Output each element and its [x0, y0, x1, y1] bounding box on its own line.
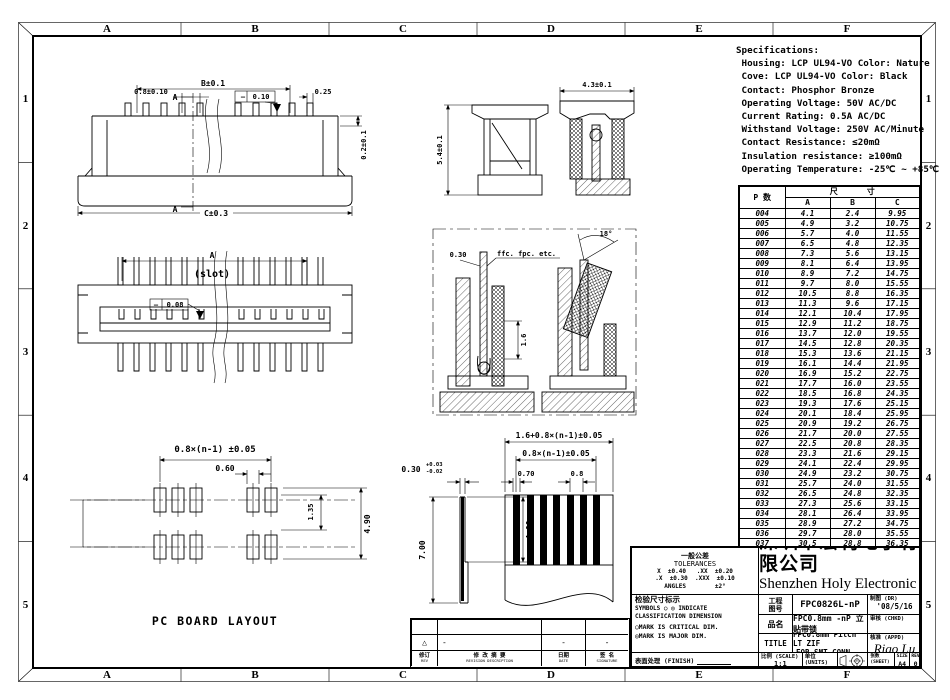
parts-table-cell: 025: [739, 419, 785, 429]
grid-row-label: 2: [921, 162, 936, 288]
ffc-view-drawing: 1.6+0.8×(n-1)±0.05 0.8×(n-1)±0.05 0.70 0…: [483, 428, 648, 613]
parts-table-cell: 22.75: [875, 369, 920, 379]
parts-table-row: 0076.54.812.35: [739, 239, 920, 249]
parts-table-col-header: B: [830, 198, 875, 209]
revision-mark-date: -: [541, 634, 585, 650]
dr-cell: 制图 (DR) '08/5/16: [867, 594, 921, 614]
parts-table-cell: 026: [739, 429, 785, 439]
label: SIGNATURE: [588, 659, 626, 664]
parts-table: P 数尺 寸ABC0044.12.49.950054.93.210.750065…: [738, 185, 921, 560]
grid-col-label: A: [33, 21, 181, 36]
front-view-geometry: [78, 99, 352, 206]
parts-table-cell: 027: [739, 439, 785, 449]
parts-table-cell: 25.6: [830, 499, 875, 509]
parts-table-row: 02016.915.222.75: [739, 369, 920, 379]
parts-table-cell: 11.55: [875, 229, 920, 239]
parts-table-cell: 29.15: [875, 449, 920, 459]
units-label: 单位 (UNITS): [803, 653, 837, 666]
pcb-layout-caption: PC BOARD LAYOUT: [152, 614, 278, 628]
parts-table-cell: 25.95: [875, 409, 920, 419]
parts-table-cell: 032: [739, 489, 785, 499]
product-label: 品名: [758, 614, 792, 633]
parts-table-cell: 22.4: [830, 459, 875, 469]
parts-table-cell: 022: [739, 389, 785, 399]
parts-table-row: 03629.728.035.55: [739, 529, 920, 539]
revision-header-sign: 签 名 SIGNATURE: [585, 650, 628, 666]
parts-table-cell: 006: [739, 229, 785, 239]
parts-table-cell: 21.15: [875, 349, 920, 359]
parts-table-cell: 19.55: [875, 329, 920, 339]
parts-table-cell: 6.5: [785, 239, 830, 249]
parts-table-row: 03528.927.234.75: [739, 519, 920, 529]
dim-overall-label: 1.6+0.8×(n-1)±0.05: [516, 431, 603, 440]
third-angle-projection-icon: [838, 654, 866, 668]
parts-table-cell: 33.95: [875, 509, 920, 519]
title-value: FPC0.8mm Pitch LT ZIF FOR SMT CONN: [792, 633, 867, 652]
grid-col-label: A: [33, 667, 181, 682]
title-label: TITLE: [758, 633, 792, 652]
parts-table-row: 02520.919.226.75: [739, 419, 920, 429]
inspection-critical: ○MARK IS CRITICAL DIM.: [632, 624, 718, 633]
parts-table-cell: 14.5: [785, 339, 830, 349]
parts-table-cell: 007: [739, 239, 785, 249]
dim-b-label: B±0.1: [201, 79, 225, 88]
parts-table-cell: 016: [739, 329, 785, 339]
parts-table-cell: 16.8: [830, 389, 875, 399]
parts-table-cell: 7.3: [785, 249, 830, 259]
parts-table-cell: 12.9: [785, 319, 830, 329]
parts-table-cell: 10.4: [830, 309, 875, 319]
parts-table-cell: 34.75: [875, 519, 920, 529]
finish-cell: 表面处理 (FINISH): [632, 652, 758, 668]
dim-depth-label: 1.6: [520, 334, 528, 347]
parts-table-cell: 13.95: [875, 259, 920, 269]
tolerance-line: .X ±0.30 .XXX ±0.10: [655, 575, 734, 583]
parts-table-cell: 005: [739, 219, 785, 229]
parts-table-cell: 16.9: [785, 369, 830, 379]
parts-table-cell: 11.2: [830, 319, 875, 329]
parts-table-cell: 028: [739, 449, 785, 459]
spec-line: Current Rating: 0.5A AC/DC: [736, 110, 936, 123]
dr-label: 制图 (DR): [868, 595, 898, 602]
sheet-value: 1 OF 1: [868, 666, 894, 668]
grid-row-label: 3: [921, 289, 936, 415]
parts-table-cell: 27.2: [830, 519, 875, 529]
parts-table-cell: 27.3: [785, 499, 830, 509]
rev-cell: REV 0: [909, 653, 921, 668]
parts-table-cell: 4.0: [830, 229, 875, 239]
dim-span-label: 0.8×(n-1) ±0.05: [174, 445, 255, 455]
parts-table-cell: 21.95: [875, 359, 920, 369]
parts-table-dim-header: 尺 寸: [785, 186, 920, 198]
label: 修订: [412, 653, 437, 659]
parts-table-cell: 3.2: [830, 219, 875, 229]
parts-table-cell: 9.95: [875, 209, 920, 219]
parts-table-cell: 10.75: [875, 219, 920, 229]
ffc-dim-lines: [501, 438, 613, 492]
parts-table-row: 0098.16.413.95: [739, 259, 920, 269]
tolerance-title-en: TOLERANCES: [674, 560, 716, 568]
parts-table-cell: 20.0: [830, 429, 875, 439]
parts-table-row: 01412.110.417.95: [739, 309, 920, 319]
parts-table-cell: 18.75: [875, 319, 920, 329]
detail-open-section: [542, 260, 634, 412]
datum-triangle: [196, 311, 204, 319]
top-view-drawing: A (slot) — 0.08: [60, 243, 390, 403]
parts-table-cell: 12.0: [830, 329, 875, 339]
dim-thickness-label: 0.30: [450, 251, 467, 259]
rev-value: 0: [910, 660, 921, 668]
parts-table-cell: 8.1: [785, 259, 830, 269]
parts-table-cell: 20.9: [785, 419, 830, 429]
inspection-line: SYMBOLS ○ ◎ INDICATE: [632, 605, 707, 613]
front-view-pins: [125, 103, 313, 116]
pcb-layout-drawing: 0.8×(n-1) ±0.05 0.60 1.35 4.90 PC BOARD …: [55, 438, 375, 633]
parts-table-row: 01916.114.421.95: [739, 359, 920, 369]
parts-table-cell: 26.5: [785, 489, 830, 499]
drawing-sheet: AABBCCDDEEFF1122334455 Specifications: H…: [0, 0, 950, 700]
parts-table-row: 02823.321.629.15: [739, 449, 920, 459]
dim-a-label: A: [210, 251, 215, 260]
section-label-top: A: [173, 93, 178, 102]
revision-cell: [411, 619, 437, 634]
parts-table-cell: 24.8: [830, 489, 875, 499]
parts-table-cell: 013: [739, 299, 785, 309]
grid-row-label: 5: [921, 542, 936, 668]
parts-table-cell: 23.3: [785, 449, 830, 459]
front-view-dim-lines: [78, 85, 362, 216]
parts-table-cell: 15.3: [785, 349, 830, 359]
parts-table-cell: 13.6: [830, 349, 875, 359]
parts-table-cell: 020: [739, 369, 785, 379]
label: 修 改 摘 要: [438, 653, 541, 659]
parts-table-cell: 25.7: [785, 479, 830, 489]
parts-table-cell: 024: [739, 409, 785, 419]
label: 日期: [542, 653, 585, 659]
parts-table-row: 02117.716.023.55: [739, 379, 920, 389]
partno-value: FPC0826L-nP: [792, 594, 867, 614]
inspection-major: ◎MARK IS MAJOR DIM.: [632, 633, 707, 642]
spec-line: Housing: LCP UL94-VO Color: Nature: [736, 57, 936, 70]
parts-table-cell: 036: [739, 529, 785, 539]
top-view-contacts: [119, 309, 324, 319]
revision-header-desc: 修 改 摘 要 REVISION DESCRIPTION: [437, 650, 541, 666]
parts-table-cell: 15.55: [875, 279, 920, 289]
scale-value: 1:1: [759, 660, 802, 668]
label: DATE: [544, 659, 583, 664]
parts-table-cell: 015: [739, 319, 785, 329]
partno-label-cell: 工程 图号: [758, 594, 792, 614]
label: REV: [413, 659, 436, 664]
detail-box-drawing: 0.30 ffc. fpc. etc. 1.6 18°: [430, 226, 642, 428]
grid-col-label: C: [329, 667, 477, 682]
grid-row-label: 4: [921, 415, 936, 541]
parts-table-cell: 17.15: [875, 299, 920, 309]
units-cell: 单位 (UNITS) mm: [802, 653, 837, 668]
appd-cell: 核准 (APPD) Rigo Lu: [867, 633, 921, 652]
dim-thickness-label: 0.30: [401, 465, 420, 474]
label: REVISION DESCRIPTION: [443, 659, 536, 664]
grid-col-label: D: [477, 667, 625, 682]
product-value: FPC0.8mm -nP 立贴带锁: [792, 614, 867, 633]
parts-table-cell: 24.35: [875, 389, 920, 399]
parts-table-row: 0119.78.015.55: [739, 279, 920, 289]
parts-table-cell: 20.8: [830, 439, 875, 449]
parts-table-cell: 4.9: [785, 219, 830, 229]
parts-table-row: 02319.317.625.15: [739, 399, 920, 409]
revision-cell: [585, 619, 628, 634]
dim-angle-label: 18°: [600, 230, 613, 238]
parts-table-cell: 031: [739, 479, 785, 489]
parts-table-row: 02621.720.027.55: [739, 429, 920, 439]
parts-table-cell: 23.55: [875, 379, 920, 389]
fcf-value: 0.10: [253, 93, 270, 101]
fcf-value: 0.08: [167, 301, 184, 309]
parts-table-row: 03226.524.832.35: [739, 489, 920, 499]
spec-line: Contact Resistance: ≤20mΩ: [736, 136, 936, 149]
parts-table-cell: 4.1: [785, 209, 830, 219]
parts-table-cell: 21.7: [785, 429, 830, 439]
revision-cell: [541, 619, 585, 634]
parts-table-cell: 16.35: [875, 289, 920, 299]
parts-table-cell: 004: [739, 209, 785, 219]
parts-table-cell: 033: [739, 499, 785, 509]
grid-col-label: B: [181, 667, 329, 682]
parts-table-cell: 29.95: [875, 459, 920, 469]
parts-table-cell: 021: [739, 379, 785, 389]
parts-table-row: 0044.12.49.95: [739, 209, 920, 219]
company-name-cn: 深圳市宏利电子有限公司: [759, 548, 921, 576]
grid-col-label: E: [625, 21, 773, 36]
parts-table-cell: 6.4: [830, 259, 875, 269]
size-cell: SIZE A4: [894, 653, 909, 668]
spec-lines: Housing: LCP UL94-VO Color: Nature Cove:…: [736, 57, 936, 176]
scale-cell: 比例 (SCALE) 1:1: [759, 653, 802, 668]
parts-table-cell: 018: [739, 349, 785, 359]
parts-table-cell: 21.6: [830, 449, 875, 459]
parts-table-row: 0108.97.214.75: [739, 269, 920, 279]
title-block: 一般公差 TOLERANCES X ±0.40 .XX ±0.20 .X ±0.…: [630, 546, 921, 668]
parts-table-cell: 008: [739, 249, 785, 259]
sheet-cell: 张数 (SHEET) 1 OF 1: [867, 653, 894, 668]
parts-table-cell: 17.7: [785, 379, 830, 389]
parts-table-cell: 11.3: [785, 299, 830, 309]
parts-table-cell: 16.1: [785, 359, 830, 369]
parts-table-cell: 26.75: [875, 419, 920, 429]
parts-table-row: 03327.325.633.15: [739, 499, 920, 509]
parts-table-cell: 023: [739, 399, 785, 409]
tolerance-line: ANGLES ±2°: [664, 583, 725, 591]
inspection-box: 检验尺寸标示 SYMBOLS ○ ◎ INDICATE CLASSIFICATI…: [632, 594, 758, 652]
partno-label: 工程: [769, 597, 783, 605]
parts-table-row: 01512.911.218.75: [739, 319, 920, 329]
front-view-drawing: B±0.1 0.8±0.10 0.25 0.2±0.1 C±0.3 — 0.10…: [55, 73, 395, 218]
company-name-en: Shenzhen Holy Electronic Co.,Ltd: [759, 576, 921, 594]
dim-pad-len-label: 1.35: [307, 504, 315, 521]
parts-table-cell: 8.0: [830, 279, 875, 289]
dim-width-label: 4.3±0.1: [582, 81, 612, 89]
revision-mark-triangle: △: [411, 634, 437, 650]
parts-table-cell: 17.6: [830, 399, 875, 409]
dim-conductor-label: 0.70: [518, 470, 535, 478]
titleblock-bottom-row: 比例 (SCALE) 1:1 单位 (UNITS) mm 张数 (SHEET): [758, 652, 921, 668]
parts-table-cell: 12.1: [785, 309, 830, 319]
parts-table-cell: 030: [739, 469, 785, 479]
parts-table-row: 01714.512.820.35: [739, 339, 920, 349]
grid-col-label: F: [773, 21, 921, 36]
label: 签 名: [586, 653, 628, 659]
parts-table-cell: 13.7: [785, 329, 830, 339]
parts-table-cell: 28.1: [785, 509, 830, 519]
parts-table-row: 03125.724.031.55: [739, 479, 920, 489]
parts-table-cell: 16.0: [830, 379, 875, 389]
parts-table-cell: 20.1: [785, 409, 830, 419]
parts-table-cell: 4.8: [830, 239, 875, 249]
appd-signature: Rigo Lu: [874, 641, 916, 652]
parts-table-cell: 33.15: [875, 499, 920, 509]
parts-table-cell: 019: [739, 359, 785, 369]
ffc-conductors: [513, 495, 600, 565]
size-label: SIZE: [897, 653, 908, 660]
parts-table-row: 0087.35.613.15: [739, 249, 920, 259]
parts-table-cell: 19.2: [830, 419, 875, 429]
parts-table-cell: 011: [739, 279, 785, 289]
fpc-strip: [460, 497, 468, 603]
company-box: 深圳市宏利电子有限公司 Shenzhen Holy Electronic Co.…: [758, 548, 921, 594]
tolerance-line: X ±0.40 .XX ±0.20: [657, 568, 733, 576]
specifications: Specifications: Housing: LCP UL94-VO Col…: [736, 44, 936, 176]
parts-table-cell: 035: [739, 519, 785, 529]
parts-table-row: 0054.93.210.75: [739, 219, 920, 229]
parts-table-cell: 012: [739, 289, 785, 299]
revision-mark-sign: -: [585, 634, 628, 650]
partno-label: 图号: [769, 605, 783, 613]
dim-pad-width-label: 0.60: [215, 464, 234, 473]
parts-table-cell: 12.35: [875, 239, 920, 249]
title-value-line: FPC0.8mm Pitch LT ZIF: [793, 633, 867, 648]
grid-row-label: 4: [18, 415, 33, 541]
revision-header-rev: 修订 REV: [411, 650, 437, 666]
pcb-dim-lines: [160, 456, 367, 559]
parts-table-cell: 28.0: [830, 529, 875, 539]
appd-label: 核准 (APPD): [868, 634, 904, 641]
parts-table-cell: 010: [739, 269, 785, 279]
parts-table-cell: 26.4: [830, 509, 875, 519]
parts-table-cell: 18.5: [785, 389, 830, 399]
parts-table-cell: 35.55: [875, 529, 920, 539]
parts-table-row: 01210.58.816.35: [739, 289, 920, 299]
dim-height-label: 5.4±0.1: [436, 135, 444, 165]
parts-table-cell: 8.8: [830, 289, 875, 299]
finish-label: 表面处理 (FINISH): [635, 656, 694, 665]
parts-table-cell: 12.8: [830, 339, 875, 349]
parts-table-cell: 23.2: [830, 469, 875, 479]
dim-span-label: 0.8×(n-1)±0.05: [522, 449, 590, 458]
parts-table-cell: 9.6: [830, 299, 875, 309]
parts-table-cell: 10.5: [785, 289, 830, 299]
chkd-label: 审核 (CHKD): [868, 615, 904, 622]
fcf-symbol: —: [241, 93, 246, 101]
tol-minus-label: -0.02: [426, 469, 443, 475]
datum-triangle: [273, 104, 281, 112]
parts-table-cell: 7.2: [830, 269, 875, 279]
grid-col-label: C: [329, 21, 477, 36]
section-label-bottom: A: [173, 205, 178, 214]
dim-c-label: C±0.3: [204, 209, 228, 218]
specifications-title: Specifications:: [736, 44, 936, 57]
parts-table-cell: 29.7: [785, 529, 830, 539]
cable-label: ffc. fpc. etc.: [497, 250, 556, 258]
inspection-title: 检验尺寸标示: [632, 595, 680, 605]
parts-table-pn-header: P 数: [739, 186, 785, 209]
detail-closed-section: [440, 252, 534, 412]
parts-table-row: 03024.923.230.75: [739, 469, 920, 479]
revision-mark-desc: -: [437, 634, 541, 650]
side-views-drawing: 5.4±0.1 4.3±0.1: [432, 73, 642, 203]
revision-table: △ - - - 修订 REV 修 改 摘 要 REVISION DESCRIPT…: [410, 618, 630, 668]
parts-table-cell: 13.15: [875, 249, 920, 259]
parts-table-cell: 034: [739, 509, 785, 519]
spec-line: Contact: Phosphor Bronze: [736, 84, 936, 97]
parts-table-cell: 25.15: [875, 399, 920, 409]
parts-table-cell: 17.95: [875, 309, 920, 319]
side-view-closed: [472, 105, 548, 195]
grid-row-label: 5: [18, 542, 33, 668]
parts-table-cell: 24.9: [785, 469, 830, 479]
tol-plus-label: +0.03: [426, 462, 443, 468]
parts-table-row: 02924.122.429.95: [739, 459, 920, 469]
parts-table-row: 02218.516.824.35: [739, 389, 920, 399]
dim-length-label: 7.00: [418, 540, 427, 559]
spec-line: Withstand Voltage: 250V AC/Minute: [736, 123, 936, 136]
parts-table-cell: 14.75: [875, 269, 920, 279]
projection-cell: [837, 653, 868, 668]
slot-label: (slot): [194, 269, 230, 280]
scale-label: 比例 (SCALE): [759, 653, 799, 660]
finish-blank-line: [697, 657, 731, 665]
parts-table-row: 02420.118.425.95: [739, 409, 920, 419]
parts-table-cell: 32.35: [875, 489, 920, 499]
parts-table-row: 01815.313.621.15: [739, 349, 920, 359]
grid-col-label: B: [181, 21, 329, 36]
revision-header-date: 日期 DATE: [541, 650, 585, 666]
parts-table-cell: 029: [739, 459, 785, 469]
units-value: mm: [803, 666, 837, 668]
parts-table-row: 02722.520.828.35: [739, 439, 920, 449]
parts-table-cell: 014: [739, 309, 785, 319]
dim-outer-label: 4.90: [363, 514, 372, 533]
sheet-label: 张数 (SHEET): [868, 653, 894, 666]
rev-label: REV: [911, 653, 919, 660]
parts-table-cell: 28.35: [875, 439, 920, 449]
parts-table-cell: 28.9: [785, 519, 830, 529]
parts-table-cell: 24.0: [830, 479, 875, 489]
chkd-cell: 审核 (CHKD): [867, 614, 921, 633]
parts-table-cell: 14.4: [830, 359, 875, 369]
parts-table-cell: 30.75: [875, 469, 920, 479]
inspection-line: CLASSIFICATION DIMENSION: [632, 613, 722, 621]
grid-col-label: D: [477, 21, 625, 36]
spec-line: Cove: LCP UL94-VO Color: Black: [736, 70, 936, 83]
parts-table-cell: 017: [739, 339, 785, 349]
parts-table-cell: 9.7: [785, 279, 830, 289]
grid-row-label: 2: [18, 162, 33, 288]
parts-table-cell: 31.55: [875, 479, 920, 489]
size-value: A4: [895, 660, 909, 668]
ffc-body: [505, 495, 613, 605]
tolerances-box: 一般公差 TOLERANCES X ±0.40 .XX ±0.20 .X ±0.…: [632, 548, 758, 594]
spec-line: Operating Voltage: 50V AC/DC: [736, 97, 936, 110]
